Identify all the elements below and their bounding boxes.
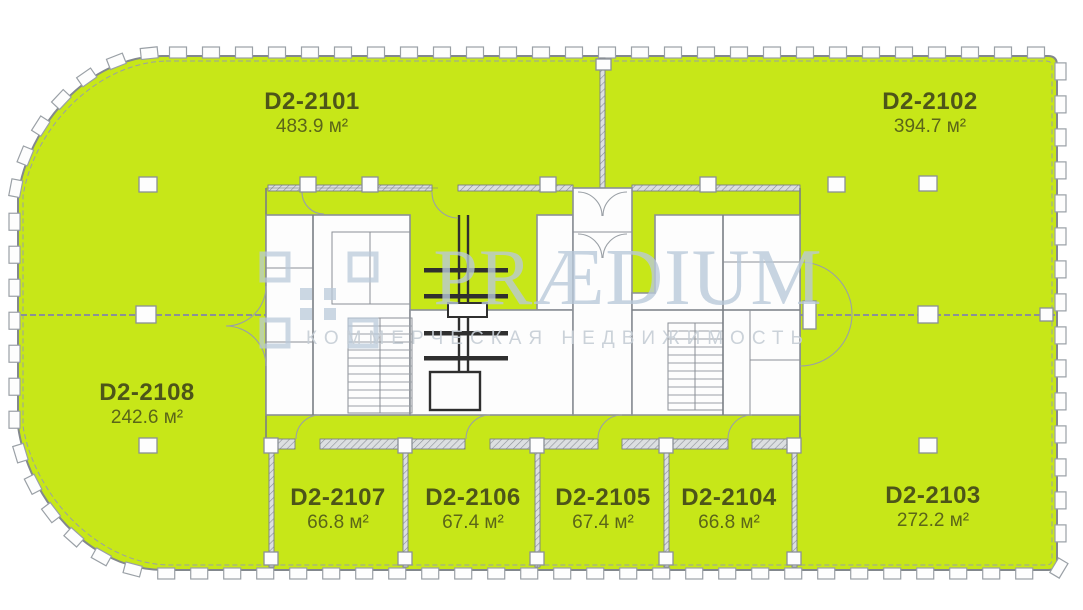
unit-id: D2-2103 — [885, 483, 981, 510]
unit-area: 66.8 м² — [290, 512, 386, 533]
unit-D2-2108-label: D2-2108 242.6 м² — [99, 380, 195, 428]
unit-area: 66.8 м² — [681, 512, 777, 533]
unit-D2-2101-label: D2-2101 483.9 м² — [264, 89, 360, 137]
unit-D2-2102-label: D2-2102 394.7 м² — [882, 89, 978, 137]
unit-area: 394.7 м² — [882, 116, 978, 137]
unit-area: 483.9 м² — [264, 116, 360, 137]
core-middle-block — [537, 215, 573, 310]
unit-D2-2106-label: D2-2106 67.4 м² — [425, 485, 521, 533]
unit-id: D2-2101 — [264, 89, 360, 116]
unit-D2-2104-label: D2-2104 66.8 м² — [681, 485, 777, 533]
unit-id: D2-2105 — [555, 485, 651, 512]
unit-area: 67.4 м² — [425, 512, 521, 533]
unit-area: 242.6 м² — [99, 407, 195, 428]
unit-D2-2105-label: D2-2105 67.4 м² — [555, 485, 651, 533]
core-vestibule — [573, 188, 632, 415]
unit-id: D2-2107 — [290, 485, 386, 512]
unit-area: 272.2 м² — [885, 510, 981, 531]
unit-id: D2-2108 — [99, 380, 195, 407]
unit-area: 67.4 м² — [555, 512, 651, 533]
floor-plan-page: PRÆDIUM КОММЕРЧЕСКАЯ НЕДВИЖИМОСТЬ D2-210… — [0, 0, 1083, 610]
core-right-block — [632, 215, 800, 415]
unit-id: D2-2104 — [681, 485, 777, 512]
unit-D2-2103-label: D2-2103 272.2 м² — [885, 483, 981, 531]
unit-divider-2101-2102 — [600, 58, 605, 188]
core-left-block — [266, 215, 410, 415]
unit-id: D2-2102 — [882, 89, 978, 116]
unit-id: D2-2106 — [425, 485, 521, 512]
unit-D2-2107-label: D2-2107 66.8 м² — [290, 485, 386, 533]
